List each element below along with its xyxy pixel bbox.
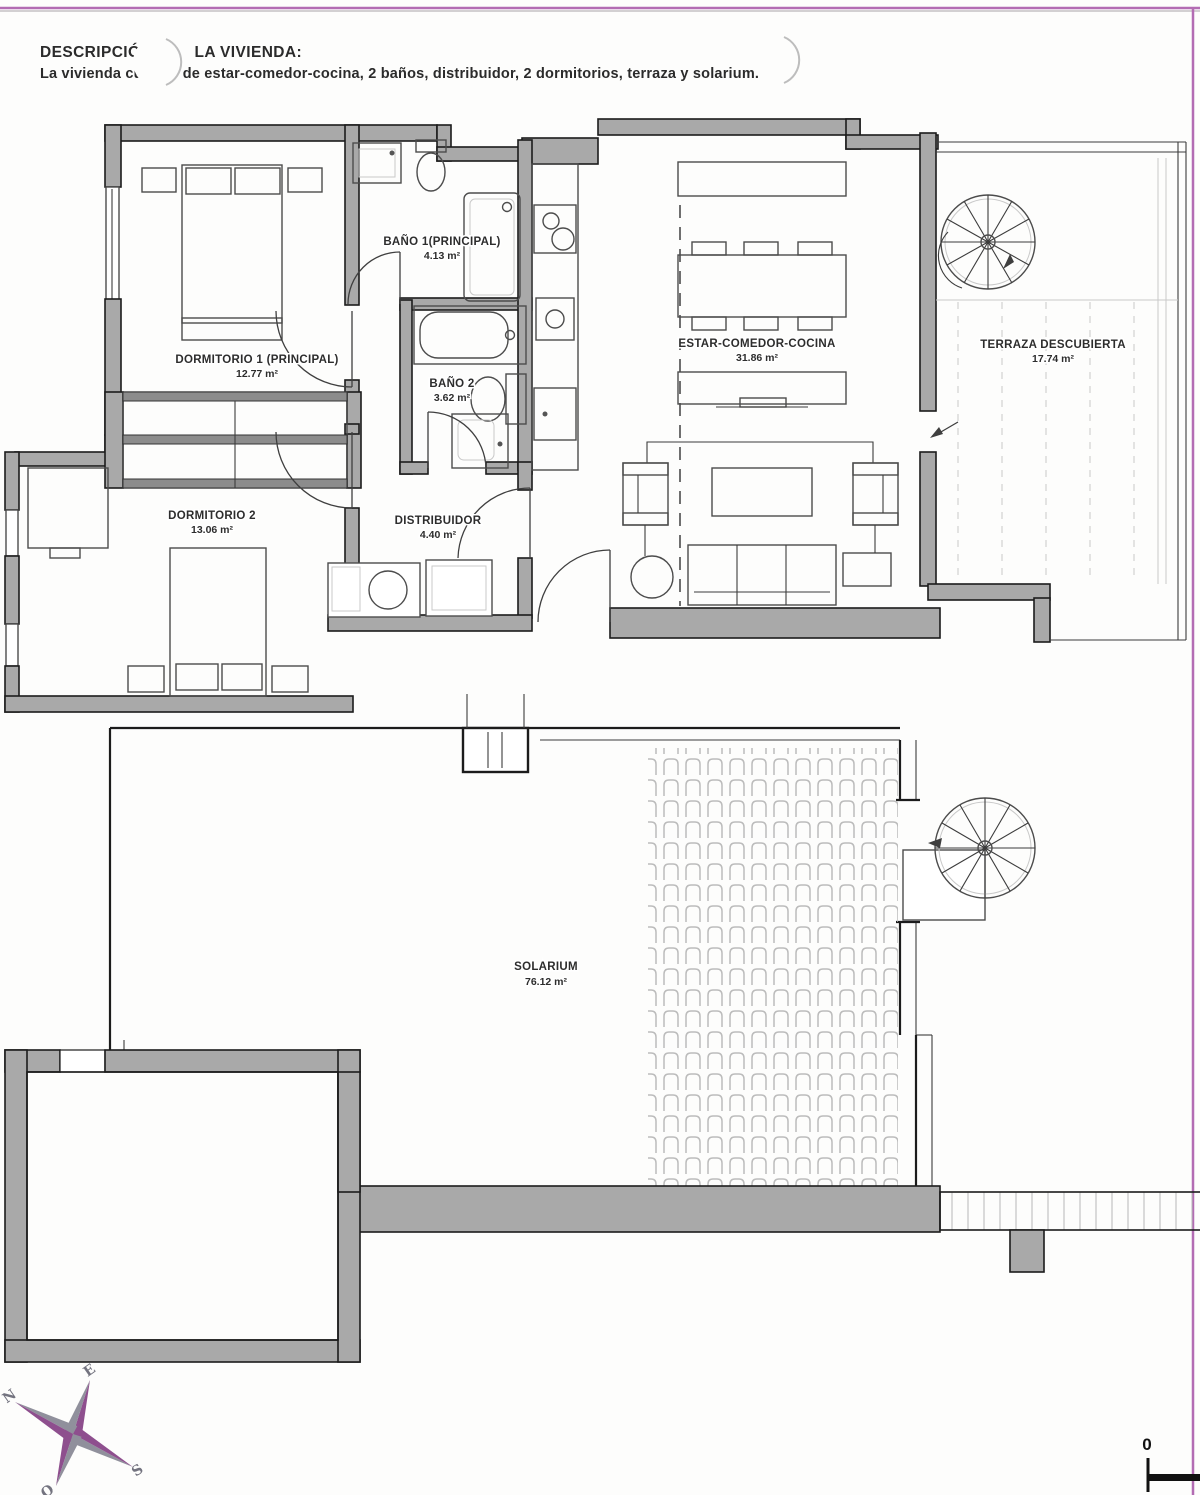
scale-zero-label: 0	[1142, 1435, 1151, 1454]
floorplan-canvas: DORMITORIO 1 (PRINCIPAL) 12.77 m² BAÑO 1…	[0, 0, 1200, 1495]
kitchen-island	[678, 162, 846, 196]
compass-letter-n: N	[0, 1386, 20, 1407]
terrace-door-arrow-icon	[930, 422, 958, 438]
sofa	[688, 545, 836, 605]
spiral-staircase-lower	[903, 798, 1035, 920]
bay-closet	[28, 468, 108, 548]
nightstand	[128, 666, 164, 692]
dining-table	[678, 242, 846, 330]
compass-rose: E N S O	[0, 1361, 146, 1495]
compass-star-icon	[15, 1380, 133, 1486]
solarium-deck-hatch	[648, 748, 898, 1186]
room-label: BAÑO 2	[429, 377, 474, 390]
lower-room	[5, 1050, 360, 1362]
room-area: 31.86 m²	[736, 352, 779, 364]
room-area: 17.74 m²	[1032, 353, 1075, 365]
tv-cabinet	[678, 372, 846, 407]
room-label: DISTRIBUIDOR	[395, 515, 482, 527]
room-area: 4.40 m²	[420, 529, 457, 541]
lower-floor-plan: SOLARIUM 76.12 m²	[5, 694, 1200, 1362]
room-area: 13.06 m²	[191, 524, 234, 536]
living-dining-furniture	[623, 162, 898, 606]
side-table	[843, 553, 891, 586]
pergola-strip	[940, 1192, 1200, 1230]
room-area: 12.77 m²	[236, 368, 279, 380]
compass-letter-s: S	[129, 1461, 146, 1480]
hole-punch-artifacts	[133, 35, 817, 87]
terraza-descubierta	[936, 142, 1186, 640]
upper-floor-plan: DORMITORIO 1 (PRINCIPAL) 12.77 m² BAÑO 1…	[5, 119, 1186, 712]
nightstand	[272, 666, 308, 692]
kitchen-sink	[536, 298, 574, 340]
solarium-right-wall	[896, 740, 932, 1188]
spiral-staircase-upper	[938, 195, 1035, 289]
scale-bar-segment	[1148, 1474, 1200, 1481]
kitchen-appliance	[534, 388, 576, 440]
kitchen-counter	[532, 164, 578, 470]
bed-dormitorio-1	[142, 165, 322, 340]
room-label: TERRAZA DESCUBIERTA	[980, 339, 1126, 351]
bathtub	[414, 306, 526, 364]
chimney-notch	[463, 694, 528, 772]
room-label: DORMITORIO 2	[168, 510, 256, 522]
hole-punch-icon	[133, 37, 183, 87]
laundry-units	[328, 560, 492, 617]
armchair	[853, 463, 898, 525]
bed-dormitorio-2	[28, 468, 308, 696]
wardrobe	[123, 392, 347, 488]
room-area: 76.12 m²	[525, 976, 568, 988]
compass-letter-e: E	[81, 1361, 99, 1380]
coffee-table	[712, 468, 812, 516]
compass-letter-o: O	[38, 1482, 57, 1495]
room-label: ESTAR-COMEDOR-COCINA	[678, 338, 835, 350]
armchair	[623, 463, 668, 525]
nightstand	[142, 168, 176, 192]
round-side-table	[631, 556, 673, 598]
room-label: DORMITORIO 1 (PRINCIPAL)	[175, 354, 338, 366]
room-area: 4.13 m²	[424, 250, 461, 262]
nightstand	[288, 168, 322, 192]
room-area: 3.62 m²	[434, 392, 471, 404]
scale-bar: 0	[1142, 1435, 1200, 1492]
walls-upper	[5, 119, 1050, 712]
door-arc	[276, 311, 352, 387]
room-label: BAÑO 1(PRINCIPAL)	[383, 235, 500, 248]
bathroom-1-fixtures	[353, 140, 520, 301]
solarium-bottom-wall	[345, 1186, 1200, 1272]
room-label: SOLARIUM	[514, 961, 578, 973]
door-arc	[538, 550, 610, 622]
floorplan-page: DESCRIPCIÓLA VIVIENDA: La vivienda cude …	[0, 0, 1200, 1495]
